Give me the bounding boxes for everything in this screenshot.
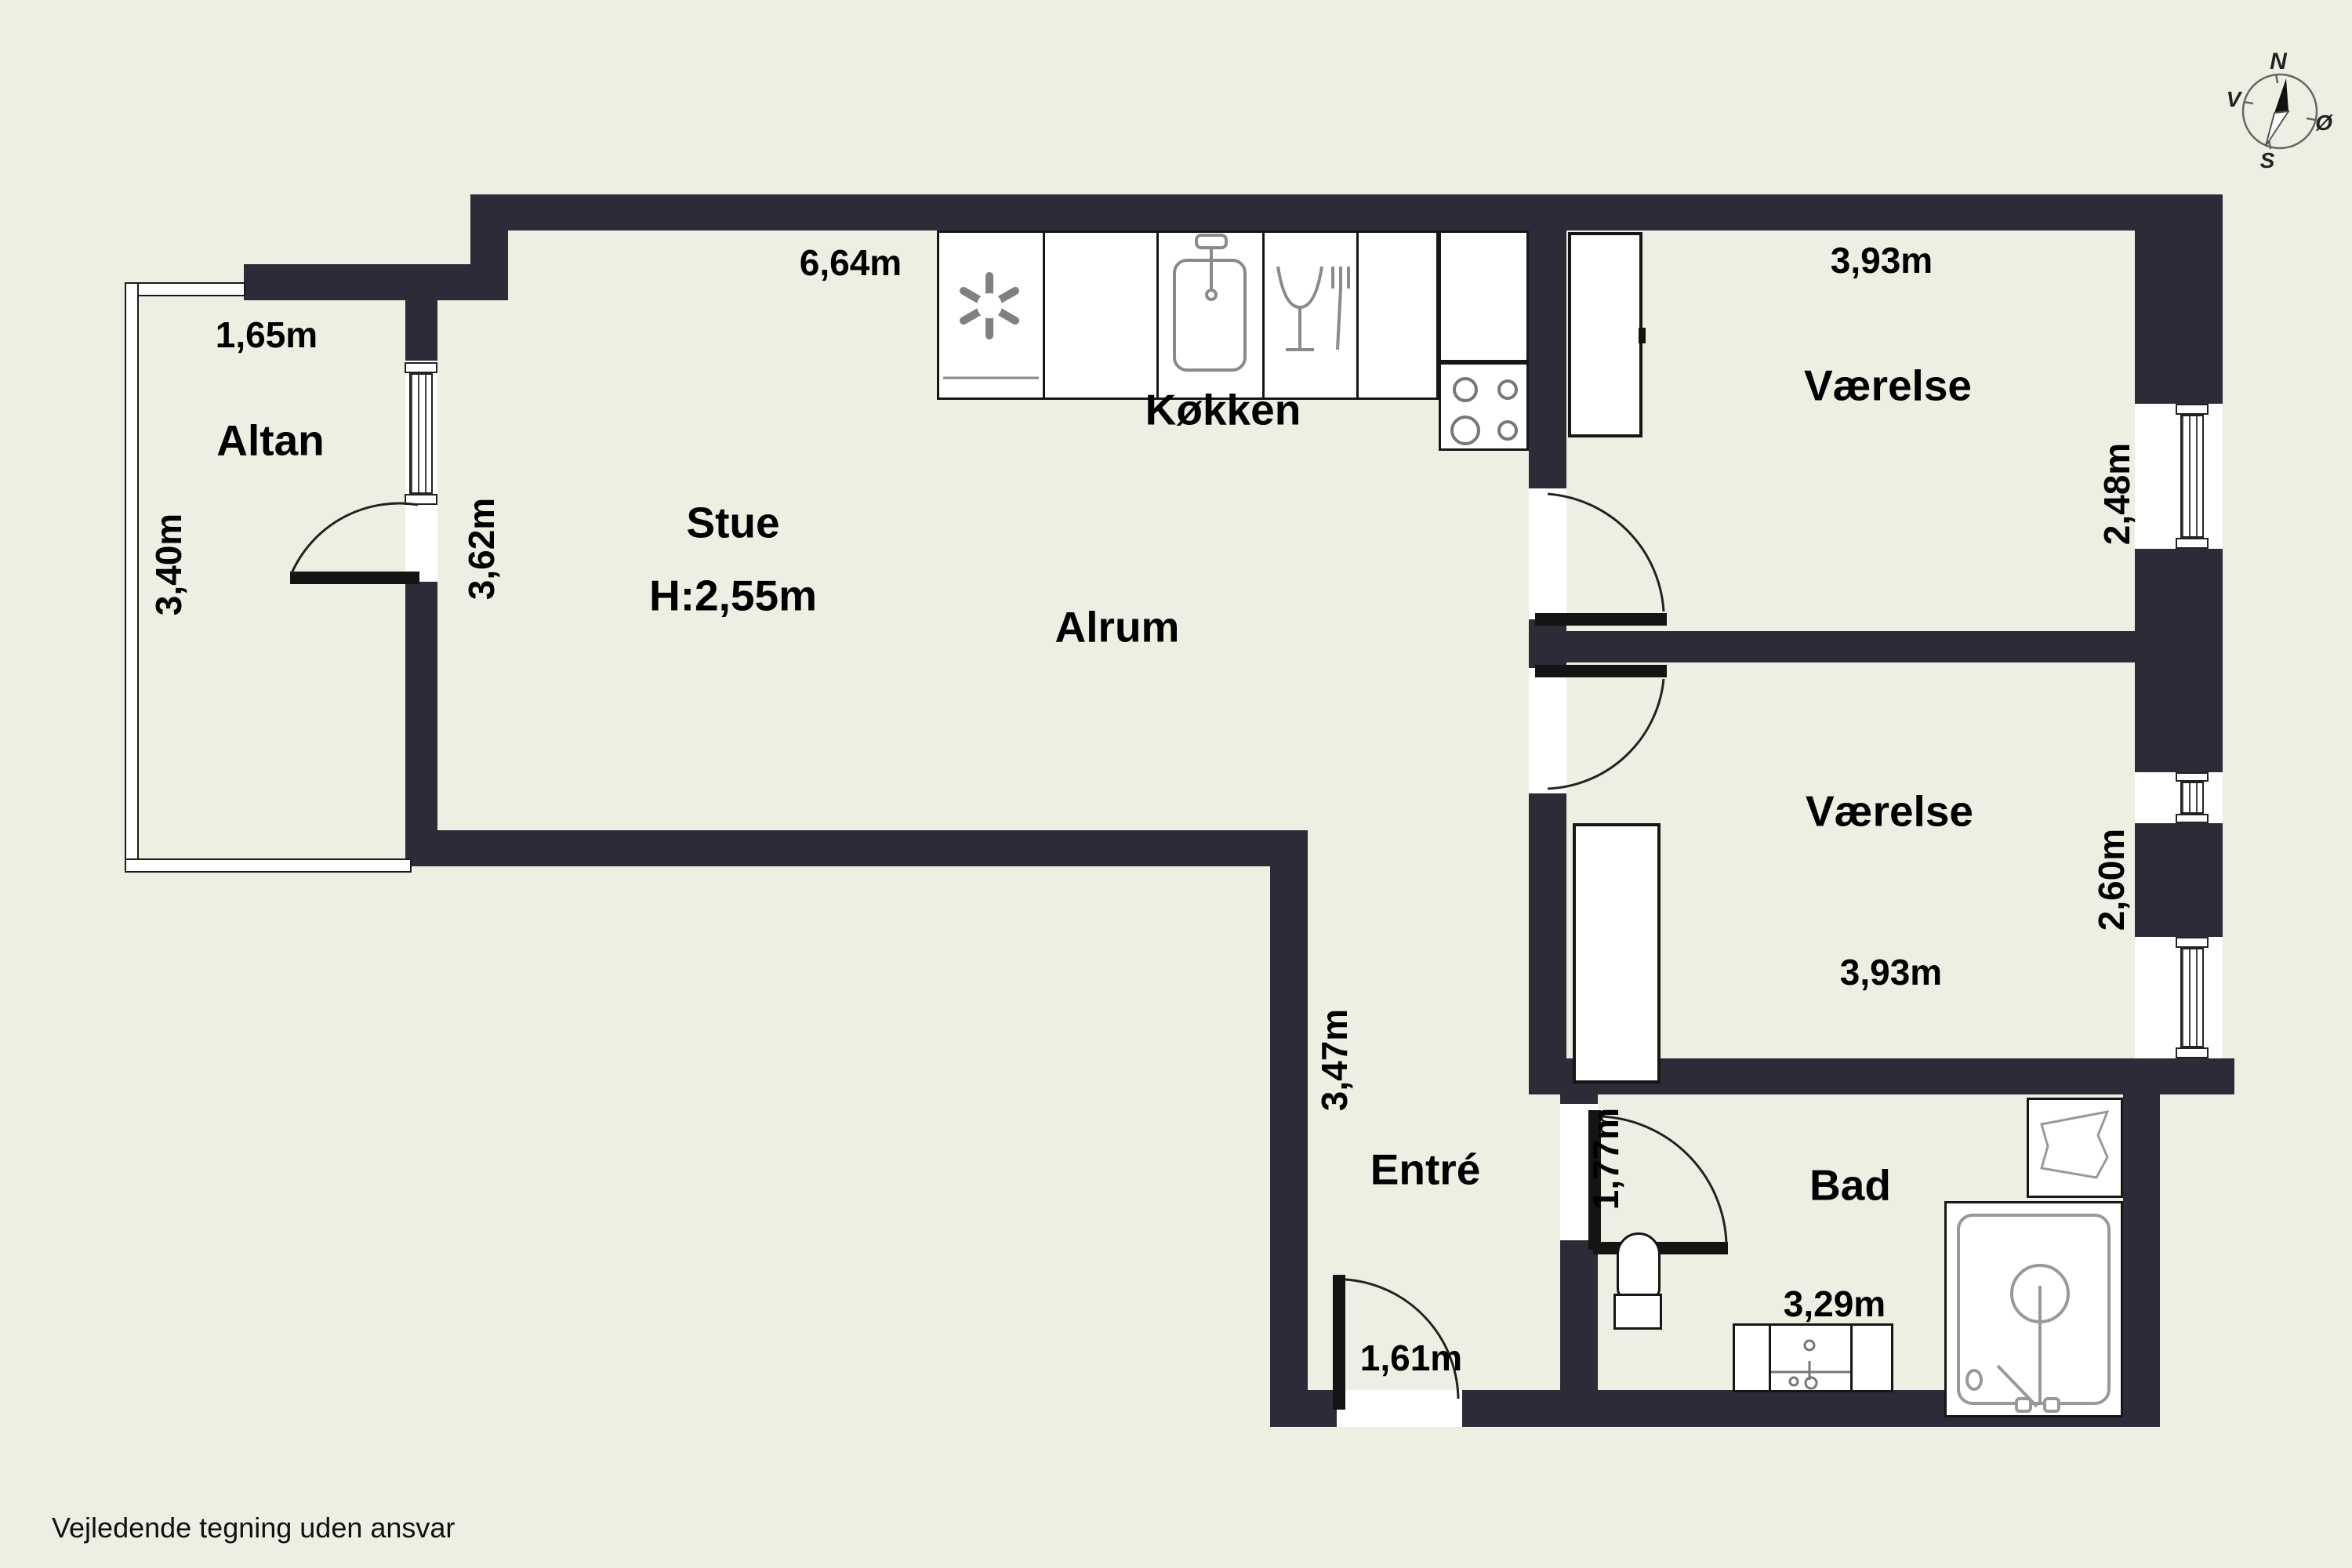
wall-stue-left-upper — [405, 300, 437, 361]
room1-door-leaf — [1535, 613, 1667, 626]
floor-plan: N V Ø S 1,65m Altan 3,40m 3,62m 6,64m Kø… — [0, 0, 2352, 1568]
window-small — [2180, 782, 2204, 814]
closet-room2 — [1573, 823, 1661, 1083]
compass-needle-south — [2266, 111, 2288, 146]
window2-cap-top — [2176, 937, 2209, 948]
label-stue-top: 6,64m — [800, 245, 902, 281]
label-altan: Altan — [216, 419, 325, 463]
label-bad: Bad — [1809, 1164, 1891, 1207]
wardrobe-room1 — [1568, 232, 1642, 437]
vanity-divider-2 — [1850, 1323, 1853, 1392]
label-room1-width: 3,93m — [1831, 242, 1933, 278]
label-entre-depth: 3,47m — [1316, 1009, 1352, 1111]
wall-exterior-right-mid — [2135, 549, 2223, 772]
wall-exterior-top — [470, 194, 2223, 230]
balcony-door-window — [409, 373, 433, 494]
window2-cap-bottom — [2176, 1047, 2209, 1058]
label-stue-side: 3,62m — [463, 498, 499, 600]
wall-stue-left-lower — [405, 582, 437, 830]
window-small-cap-bottom — [2176, 814, 2209, 823]
compass-label-o: Ø — [2315, 111, 2333, 135]
label-kokken: Køkken — [1145, 389, 1301, 432]
balcony-wall-bottom — [125, 858, 412, 873]
vanity-divider-1 — [1769, 1323, 1771, 1392]
balcony-window-cap-bottom — [405, 494, 437, 505]
compass-label-s: S — [2260, 148, 2275, 172]
stove — [1439, 362, 1529, 451]
kitchen-counter — [937, 230, 1439, 400]
window1-backing — [2135, 404, 2223, 549]
toilet-tank — [1613, 1294, 1662, 1330]
disclaimer-text: Vejledende tegning uden ansvar — [52, 1512, 455, 1544]
counter-divider-2 — [1156, 230, 1159, 400]
compass-rose-icon: N V Ø S — [2227, 49, 2333, 172]
counter-divider-3 — [1262, 230, 1265, 400]
wall-exterior-right-top — [2135, 230, 2223, 404]
wall-bad-right — [2123, 1094, 2160, 1427]
wall-top-step-vertical — [470, 230, 508, 267]
compass-label-n: N — [2270, 49, 2288, 74]
shower-icon — [1944, 1201, 2123, 1417]
label-room2: Værelse — [1806, 790, 1973, 833]
wall-top-step-horizontal — [244, 264, 508, 300]
vanity-sink-icon — [1733, 1323, 1893, 1392]
label-room1-depth: 2,48m — [2099, 443, 2135, 545]
washbasin-icon — [2027, 1098, 2123, 1198]
balcony-door-arc — [292, 503, 418, 573]
balcony-wall-top — [125, 282, 245, 296]
wall-hall-upper — [1529, 230, 1566, 488]
kitchen-corner-unit — [1439, 230, 1529, 362]
balcony-window-cap-top — [405, 362, 437, 373]
bad-door-stub — [1593, 1242, 1728, 1254]
room2-door-leaf — [1535, 665, 1667, 677]
label-entre-door: 1,61m — [1360, 1340, 1462, 1376]
window2-backing — [2135, 937, 2223, 1058]
label-altan-width: 1,65m — [216, 317, 318, 353]
window1-cap-top — [2176, 404, 2209, 415]
window-room1 — [2180, 415, 2204, 538]
room1-door-opening — [1529, 488, 1566, 619]
wall-room-divider — [1529, 631, 2135, 662]
compass-needle-north — [2274, 78, 2288, 113]
window-small-cap-top — [2176, 772, 2209, 782]
counter-divider-4 — [1356, 230, 1359, 400]
label-stue-ceiling: H:2,55m — [649, 575, 817, 618]
label-bad-width: 3,29m — [1784, 1286, 1886, 1322]
wall-exterior-right-mid2 — [2135, 823, 2223, 937]
room2-door-opening — [1529, 668, 1566, 793]
entrance-door-opening — [1337, 1390, 1462, 1427]
label-altan-depth: 3,40m — [151, 514, 187, 615]
counter-divider-1 — [1043, 230, 1045, 400]
balcony-door-opening — [405, 506, 437, 582]
label-bad-door: 1,77m — [1588, 1108, 1624, 1210]
label-room2-depth: 2,60m — [2093, 829, 2129, 931]
entrance-door-leaf — [1333, 1275, 1345, 1410]
balcony-wall-left — [125, 282, 139, 873]
compass-label-v: V — [2227, 87, 2243, 111]
label-entre: Entré — [1370, 1149, 1481, 1192]
wall-stue-bottom — [405, 830, 1308, 866]
label-alrum: Alrum — [1055, 606, 1180, 649]
window1-cap-bottom — [2176, 538, 2209, 549]
wall-entre-left — [1270, 866, 1308, 1427]
toilet-icon — [1617, 1232, 1661, 1300]
window-room2 — [2180, 948, 2204, 1047]
label-room2-width: 3,93m — [1840, 954, 1942, 990]
balcony-door-leaf — [290, 572, 419, 584]
wall-hall-between-doors — [1529, 619, 1566, 668]
label-stue: Stue — [686, 502, 779, 545]
label-room1: Værelse — [1804, 365, 1972, 408]
wardrobe-room1-handle — [1639, 328, 1646, 343]
wall-hall-lower — [1529, 793, 1566, 1058]
